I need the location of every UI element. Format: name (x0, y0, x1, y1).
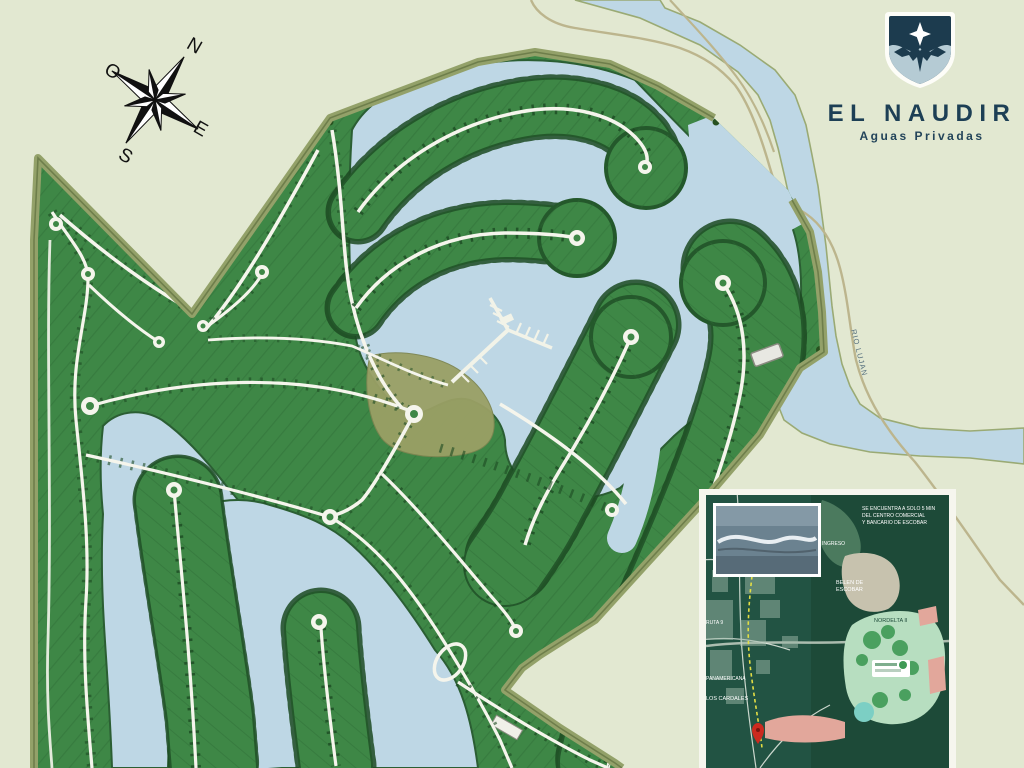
svg-text:PANAMERICANA: PANAMERICANA (706, 676, 746, 682)
svg-text:NORDELTA II: NORDELTA II (874, 618, 908, 624)
svg-text:DEL CENTRO COMERCIAL: DEL CENTRO COMERCIAL (862, 513, 925, 519)
svg-text:BELEN DE: BELEN DE (836, 580, 864, 586)
svg-text:EL NAUDIR: EL NAUDIR (828, 100, 1017, 127)
svg-text:RUTA 9: RUTA 9 (706, 620, 723, 626)
svg-text:Y BANCARIO DE ESCOBAR: Y BANCARIO DE ESCOBAR (862, 520, 927, 526)
svg-text:ESCOBAR: ESCOBAR (836, 587, 863, 593)
svg-text:SE ENCUENTRA A SOLO 5 MIN: SE ENCUENTRA A SOLO 5 MIN (862, 506, 935, 512)
svg-text:INGRESO: INGRESO (822, 541, 845, 547)
svg-text:LOS CARDALES: LOS CARDALES (706, 696, 749, 702)
svg-text:Aguas Privadas: Aguas Privadas (859, 129, 984, 143)
